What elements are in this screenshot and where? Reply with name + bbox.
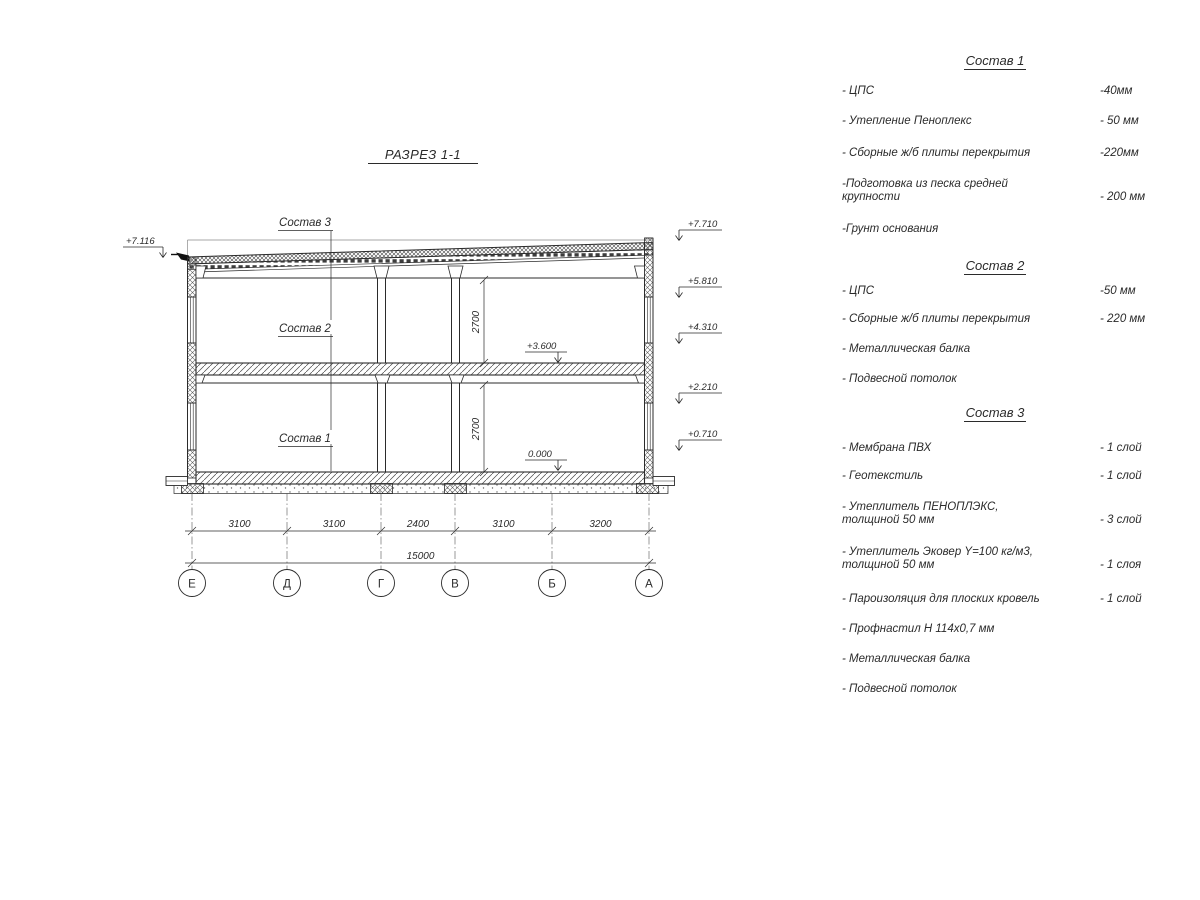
- sostav-2-heading: Состав 2: [830, 258, 1160, 273]
- axis-label-d: Д: [283, 579, 291, 591]
- axis-bubbles: Е Д Г В Б А: [179, 570, 663, 597]
- elev-5810: +5.810: [688, 276, 718, 287]
- middle-floor-slab: [196, 363, 645, 383]
- list-item: - Мембрана ПВХ- 1 слой: [830, 442, 1160, 455]
- elev-2210: +2.210: [688, 382, 718, 393]
- right-wall: [645, 238, 654, 478]
- list-item: - Сборные ж/б плиты перекрытия- 220 мм: [830, 313, 1160, 326]
- sostav-3-heading: Состав 3: [830, 405, 1160, 420]
- label-sostav-3: Состав 3: [279, 217, 331, 229]
- axis-label-v: В: [451, 579, 459, 591]
- column-g-1f: [378, 383, 386, 472]
- sostav-1-heading: Состав 1: [830, 53, 1160, 68]
- sand-preparation-band: [174, 484, 668, 494]
- list-item: - Профнастил Н 114х0,7 мм: [830, 623, 1160, 636]
- axis-label-e: Е: [188, 579, 196, 591]
- axis-label-g: Г: [378, 579, 385, 591]
- interior-level-marks: +3.600 0.000: [525, 341, 567, 471]
- list-item: - Сборные ж/б плиты перекрытия-220мм: [830, 147, 1160, 160]
- list-item: - Подвесной потолок: [830, 373, 1160, 386]
- elev-3600: +3.600: [527, 341, 557, 352]
- elev-4310: +4.310: [688, 322, 718, 333]
- list-item: - Утеплитель ПЕНОПЛЭКС, толщиной 50 мм- …: [830, 501, 1160, 527]
- label-sostav-1: Состав 1: [279, 433, 331, 445]
- dim-15000: 15000: [407, 551, 435, 562]
- elevation-labels-right: +7.710 +5.810 +4.310 +2.210 +0.710: [688, 219, 718, 440]
- list-item: - Подвесной потолок: [830, 683, 1160, 696]
- drawing-sheet: РАЗРЕЗ 1-1: [0, 0, 1200, 900]
- column-v-1f: [452, 383, 460, 472]
- elevation-marks-right: [676, 230, 723, 451]
- dim-2700-lower: 2700: [471, 417, 482, 441]
- roof-beam-capitals: [196, 266, 645, 278]
- list-item: -Подготовка из песка средней крупности- …: [830, 178, 1160, 204]
- list-item: - ЦПС-40мм: [830, 85, 1160, 98]
- list-item: - Утеплитель Эковер Y=100 кг/м3, толщино…: [830, 546, 1160, 572]
- list-item: - ЦПС-50 мм: [830, 285, 1160, 298]
- elev-7116: +7.116: [126, 236, 155, 247]
- building-section-drawing: Состав 3 Состав 2 Состав 1 +7.710 +5.810…: [0, 0, 790, 660]
- dim-3200: 3200: [589, 519, 612, 530]
- ground-slab: [166, 472, 675, 494]
- column-g-2f: [378, 278, 386, 363]
- list-item: - Металлическая балка: [830, 653, 1160, 666]
- axis-label-b: Б: [548, 579, 556, 591]
- list-item: -Грунт основания: [830, 223, 1160, 236]
- roof-assembly: [171, 243, 653, 279]
- storey-height-dimensions: 2700 2700: [471, 276, 488, 476]
- dim-3100-2: 3100: [323, 519, 346, 530]
- dim-2400: 2400: [406, 519, 430, 530]
- slab-beam-capitals: [196, 375, 645, 383]
- label-sostav-2: Состав 2: [279, 323, 331, 335]
- elev-7710: +7.710: [688, 219, 718, 230]
- list-item: - Пароизоляция для плоских кровель- 1 сл…: [830, 593, 1160, 606]
- dim-2700-upper: 2700: [471, 310, 482, 334]
- elev-0000: 0.000: [528, 449, 552, 460]
- elevation-mark-left: +7.116: [123, 236, 167, 258]
- composition-panel: Состав 1 - ЦПС-40мм - Утепление Пеноплек…: [830, 40, 1160, 720]
- list-item: - Геотекстиль- 1 слой: [830, 470, 1160, 483]
- list-item: - Утепление Пеноплекс- 50 мм: [830, 115, 1160, 128]
- elev-0710: +0.710: [688, 429, 718, 440]
- list-item: - Металлическая балка: [830, 343, 1160, 356]
- dim-3100-1: 3100: [228, 519, 251, 530]
- left-wall: [188, 257, 197, 478]
- axis-label-a: А: [645, 579, 653, 591]
- dim-3100-3: 3100: [492, 519, 515, 530]
- column-v-2f: [452, 278, 460, 363]
